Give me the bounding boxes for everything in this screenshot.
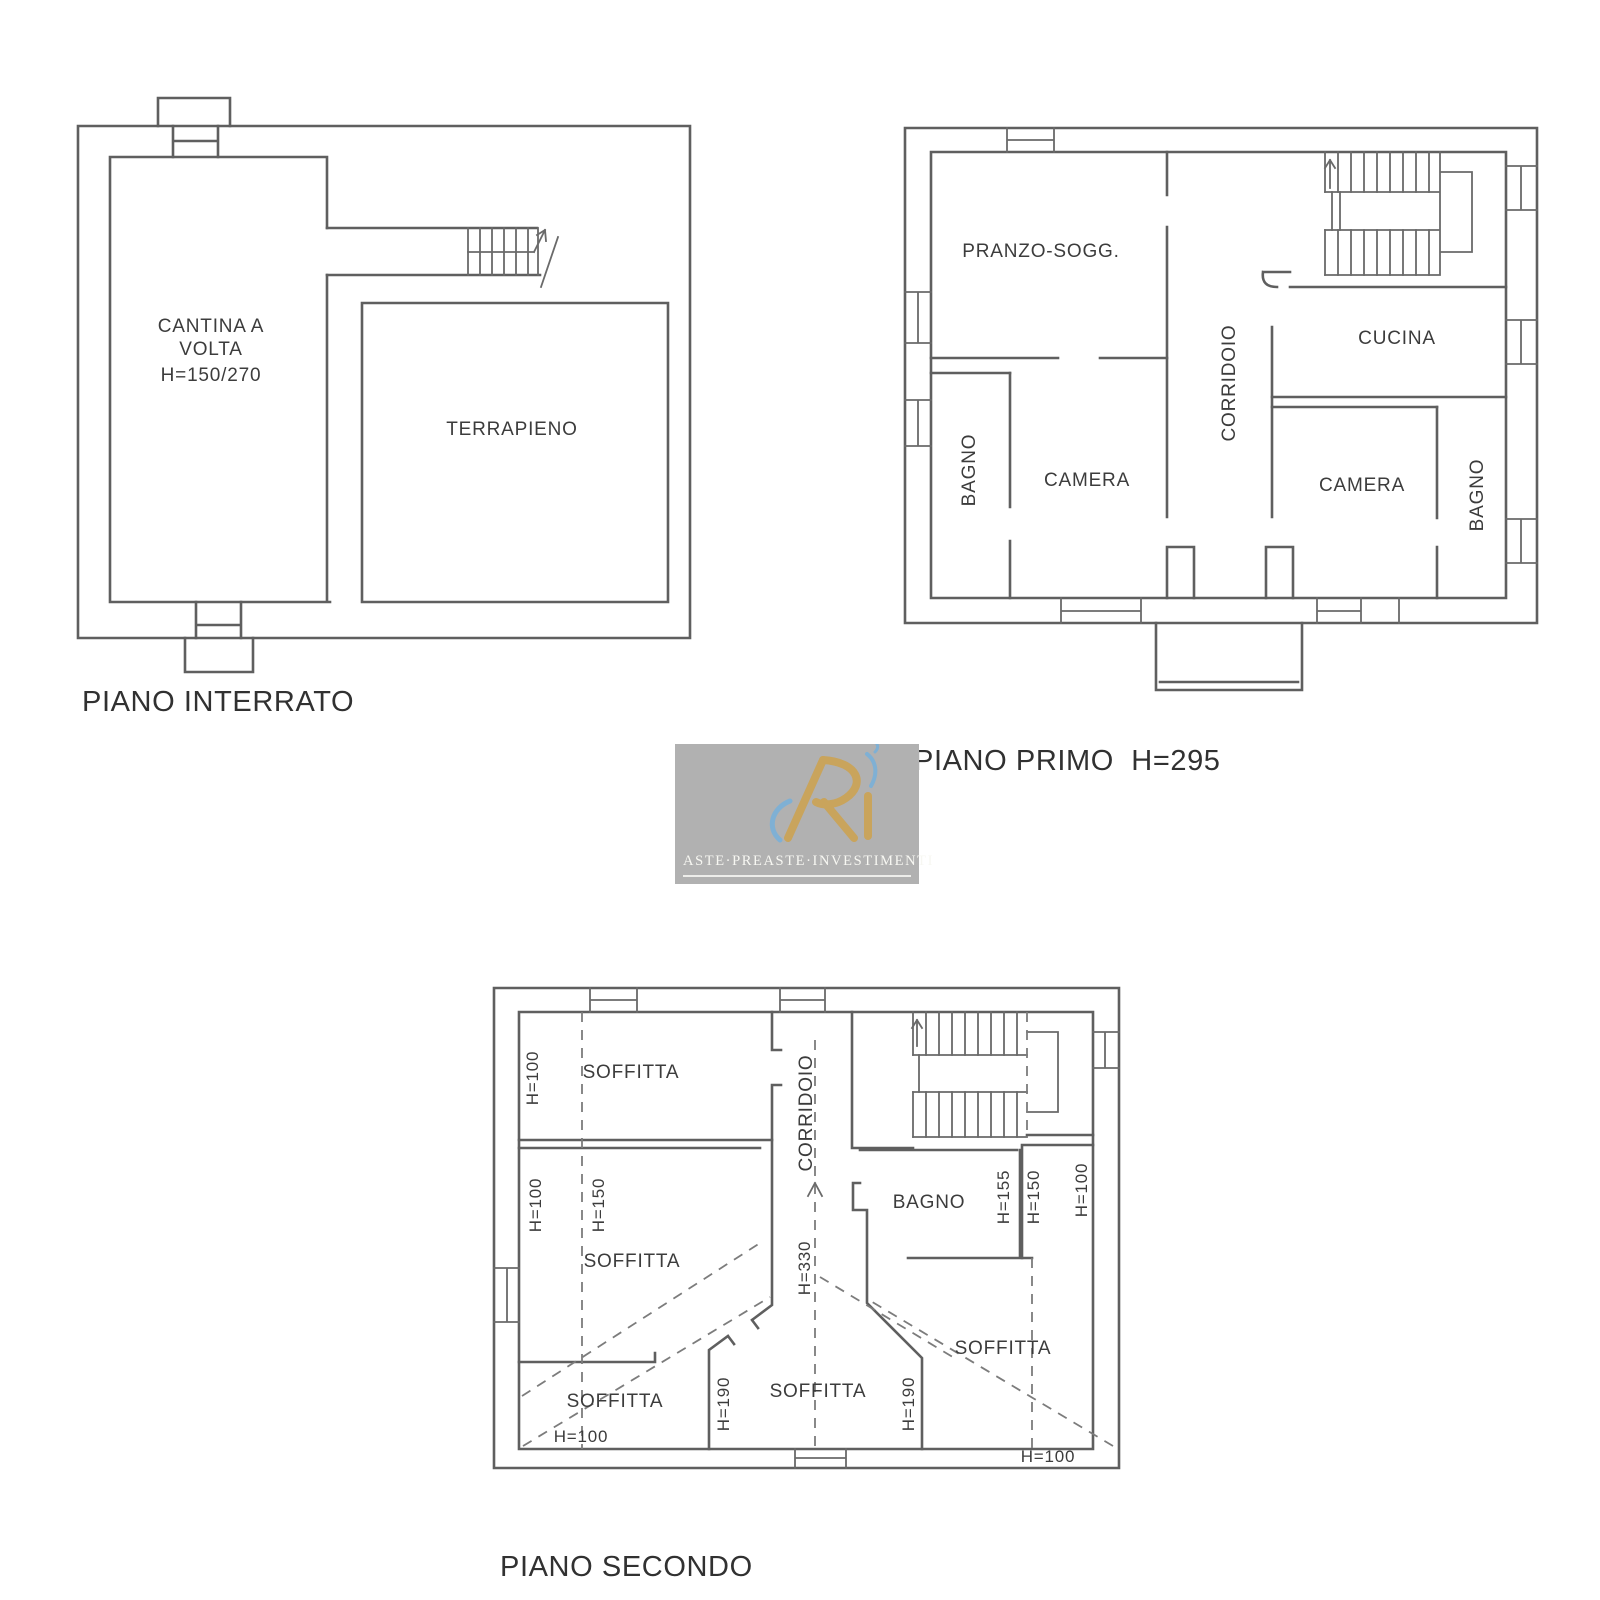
plan-title-interrato: PIANO INTERRATO [82,686,354,719]
room-label-cucina: CUCINA [1358,328,1436,350]
room-label-bagno-left: BAGNO [959,434,981,507]
room-label-corridoio-primo: CORRIDOIO [1219,325,1241,442]
secondo-windows-top [590,988,825,1012]
primo-corridor-left-wall [1167,152,1194,598]
room-label-soffitta-w: SOFFITTA [584,1251,681,1273]
agency-watermark: ASTE·PREASTE·INVESTIMENTI [675,744,919,884]
plan-title-secondo: PIANO SECONDO [500,1551,753,1584]
interrato-chimney [158,98,230,157]
height-label-e3: H=100 [1072,1163,1092,1218]
room-label-terrapieno: TERRAPIENO [446,419,578,441]
secondo-stair-left-wall [852,1012,913,1148]
room-label-soffitta-nw: SOFFITTA [583,1062,680,1084]
secondo-window-bottom [795,1449,846,1468]
primo-stairs-direction-arrow [1325,160,1335,188]
primo-cucina-walls [1272,397,1506,407]
primo-window-top [1007,128,1054,152]
room-label-corridoio-secondo: CORRIDOIO [796,1055,818,1172]
secondo-window-right [1093,1032,1119,1068]
height-label-w2: H=150 [589,1178,609,1233]
room-label-cantina-line2: VOLTA [179,339,242,361]
height-label-e1: H=155 [994,1170,1014,1225]
interrato-stairs-break-line [541,237,558,287]
agency-brand-text: ASTE·PREASTE·INVESTIMENTI [683,853,911,877]
interrato-terrapieno-walls [362,303,668,602]
height-label-nw: H=100 [523,1051,543,1106]
room-label-cantina-line1: CANTINA A [158,316,264,338]
height-label-s-right: H=190 [899,1377,919,1432]
room-label-pranzo-sogg: PRANZO-SOGG. [962,241,1119,263]
secondo-window-left [494,1268,519,1322]
agency-monogram-icon [675,744,919,854]
secondo-stairs-landing [913,1032,1058,1137]
primo-windows-left [905,292,931,446]
height-label-w1: H=100 [526,1178,546,1233]
room-label-bagno-secondo: BAGNO [893,1192,966,1214]
height-label-corridoio: H=330 [795,1241,815,1296]
primo-stairs-treads [1325,152,1429,275]
primo-corridor-right-wall [1266,327,1293,598]
room-label-camera-right: CAMERA [1319,475,1405,497]
height-label-e2: H=150 [1024,1170,1044,1225]
primo-stairs-landing [1325,152,1472,275]
height-label-se: H=100 [1021,1447,1076,1467]
primo-windows-right [1506,166,1537,563]
height-label-s-left: H=190 [714,1377,734,1432]
primo-porch [1156,623,1302,690]
room-label-soffitta-s: SOFFITTA [770,1381,867,1403]
floor-plan-sheet: CANTINA A VOLTA H=150/270 TERRAPIENO PIA… [0,0,1600,1600]
room-label-cantina-height: H=150/270 [161,365,262,387]
height-label-sw: H=100 [554,1427,609,1447]
plan-title-primo: PIANO PRIMO H=295 [914,745,1221,778]
room-label-bagno-right: BAGNO [1467,459,1489,532]
primo-pranzo-walls [931,358,1167,373]
primo-windows-bottom [1061,598,1399,623]
secondo-stairs-treads [913,1012,1017,1137]
room-label-soffitta-e: SOFFITTA [955,1338,1052,1360]
room-label-soffitta-sw: SOFFITTA [567,1391,664,1413]
room-label-camera-left: CAMERA [1044,470,1130,492]
